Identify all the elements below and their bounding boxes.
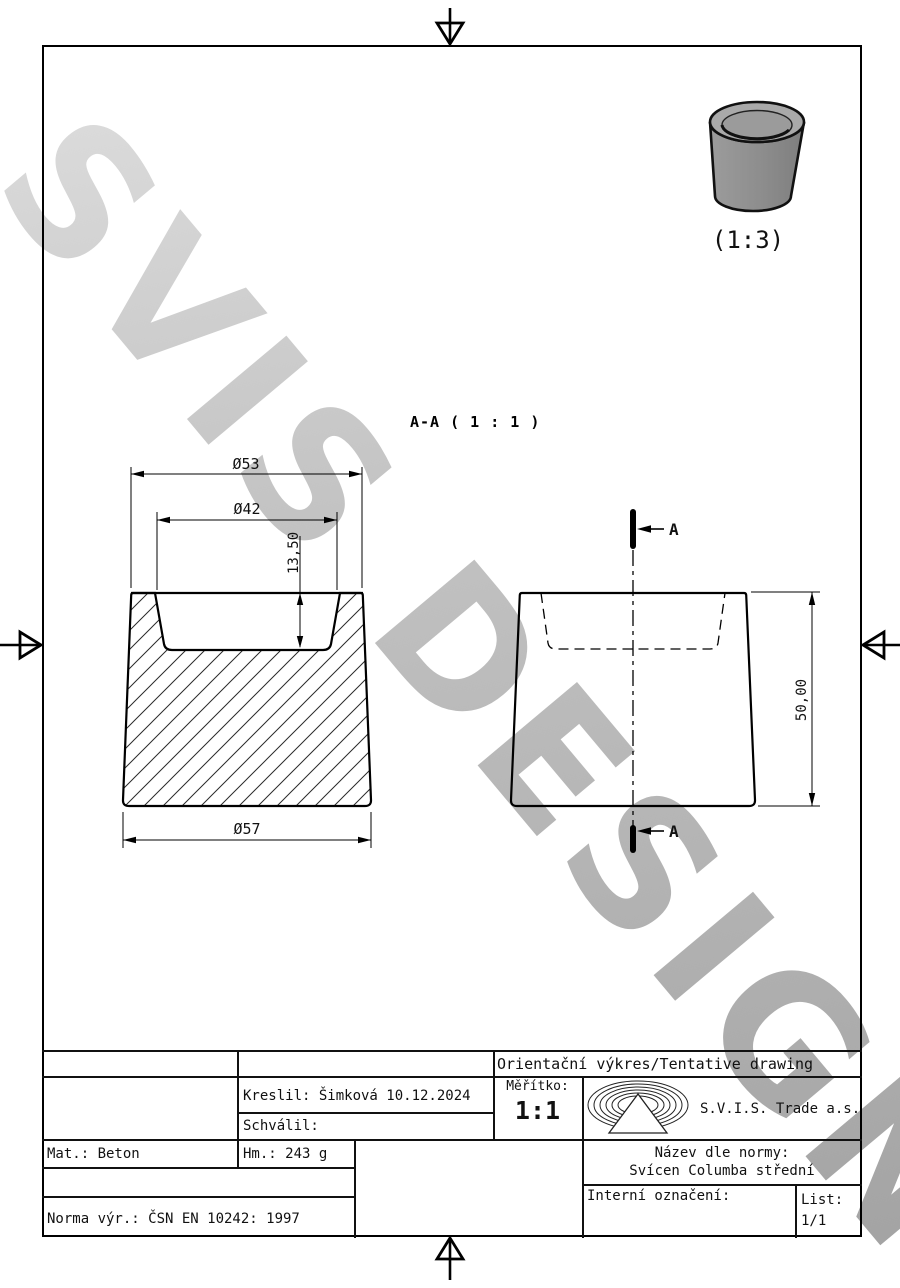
- dim-recess-diameter: Ø42: [157, 500, 337, 590]
- drawn-by-field: Kreslil: Šimková 10.12.2024: [243, 1088, 471, 1104]
- company-logo: [585, 1078, 705, 1140]
- sheet-label: List:: [801, 1192, 843, 1208]
- dim-height: 50,00: [751, 592, 820, 806]
- company-name: S.V.I.S. Trade a.s.: [700, 1101, 860, 1117]
- trim-mark-left: [0, 632, 41, 658]
- sheet-number: 1/1: [801, 1213, 826, 1229]
- tentative-drawing-label: Orientační výkres/Tentative drawing: [497, 1056, 813, 1073]
- thumbnail-scale-label: (1:3): [678, 226, 818, 254]
- cutting-arrow-top: A: [637, 520, 679, 539]
- dim-base-diameter-value: Ø57: [233, 820, 260, 838]
- dim-recess-depth: 13,50: [286, 532, 303, 648]
- titleblock-line: [582, 1184, 862, 1186]
- cutting-arrow-bottom-label: A: [669, 822, 679, 841]
- titleblock-line: [42, 1050, 862, 1052]
- scale-value: 1:1: [493, 1097, 582, 1126]
- cutting-plane-line: A A: [633, 512, 679, 850]
- trim-mark-top: [437, 8, 463, 44]
- trim-mark-right: [863, 632, 900, 658]
- part-name: Svícen Columba střední: [582, 1163, 862, 1179]
- cutting-arrow-bottom: A: [637, 822, 679, 841]
- section-view-a-a: [123, 593, 371, 806]
- titleblock-line: [42, 1139, 862, 1141]
- titleblock-line: [795, 1184, 797, 1238]
- trim-mark-bottom: [437, 1238, 463, 1280]
- titleblock-line: [42, 1196, 355, 1198]
- titleblock-line: [493, 1050, 495, 1141]
- drawing-sheet: SVIS DESIGN: [0, 0, 900, 1288]
- internal-designation-label: Interní označení:: [587, 1188, 730, 1204]
- titleblock-line: [237, 1112, 493, 1114]
- section-view-title: A-A ( 1 : 1 ): [410, 413, 540, 431]
- mass-field: Hm.: 243 g: [243, 1146, 327, 1162]
- titleblock-line: [237, 1050, 239, 1169]
- dim-recess-depth-value: 13,50: [286, 532, 302, 574]
- dim-height-value: 50,00: [794, 679, 810, 721]
- dim-base-diameter: Ø57: [123, 812, 371, 848]
- titleblock-line: [42, 1076, 862, 1078]
- cutting-arrow-top-label: A: [669, 520, 679, 539]
- logo-triangle: [609, 1094, 667, 1133]
- material-field: Mat.: Beton: [47, 1146, 140, 1162]
- production-standard-field: Norma výr.: ČSN EN 10242: 1997: [47, 1211, 300, 1227]
- scale-label: Měřítko:: [493, 1080, 582, 1095]
- dim-top-diameter-value: Ø53: [232, 455, 259, 473]
- titleblock-line: [42, 1167, 355, 1169]
- titleblock-line: [354, 1139, 356, 1238]
- iso-thumbnail-model: [710, 102, 804, 211]
- approved-by-field: Schválil:: [243, 1118, 319, 1134]
- name-per-standard-label: Název dle normy:: [582, 1145, 862, 1161]
- dim-recess-diameter-value: Ø42: [233, 500, 260, 518]
